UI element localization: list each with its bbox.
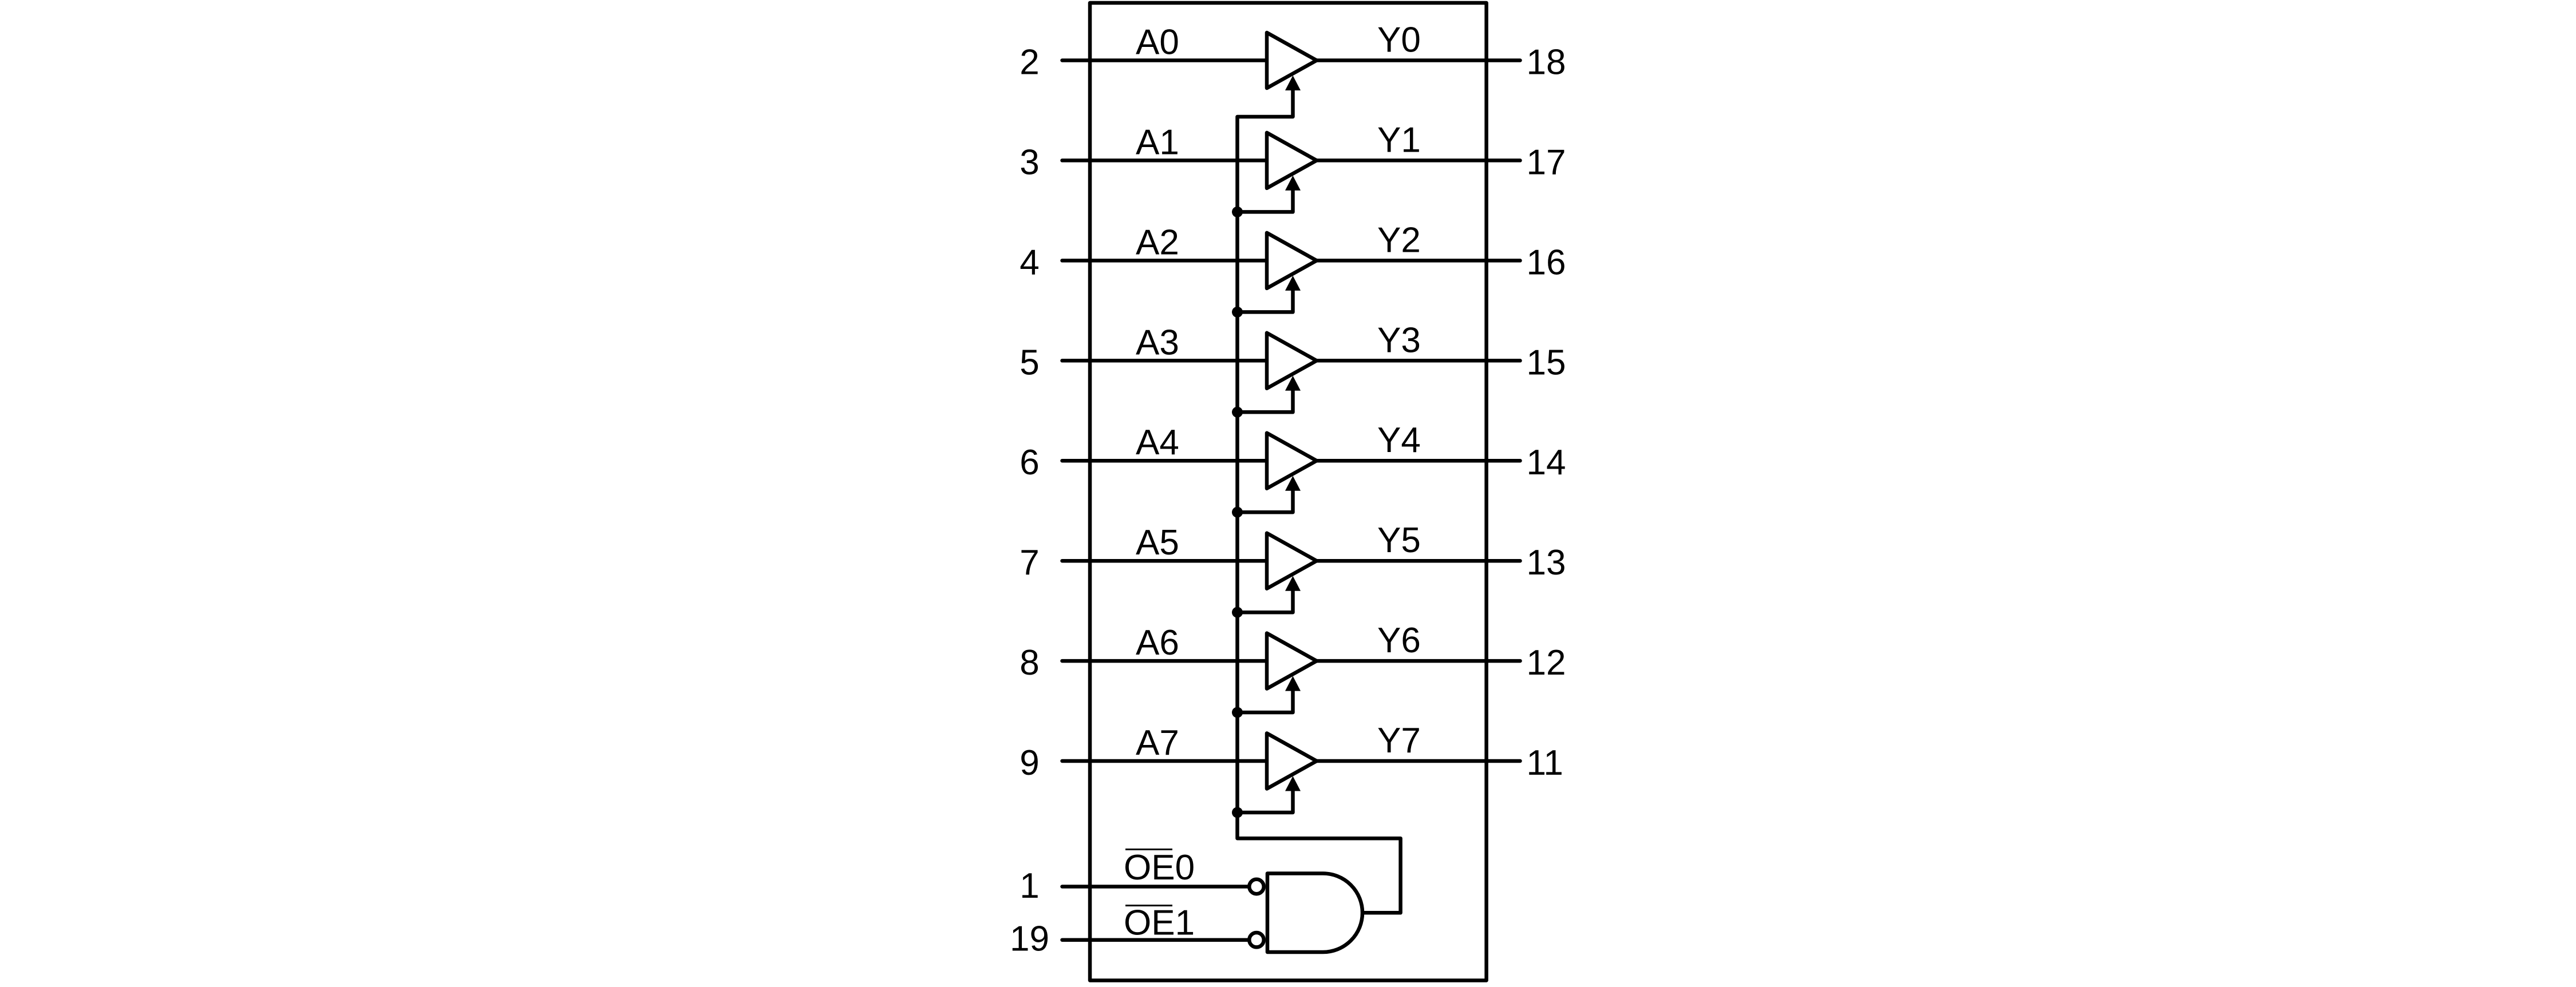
- svg-text:A4: A4: [1136, 423, 1179, 462]
- svg-text:A1: A1: [1136, 122, 1179, 162]
- svg-text:16: 16: [1527, 243, 1566, 282]
- svg-text:A3: A3: [1136, 323, 1179, 362]
- svg-text:Y3: Y3: [1377, 320, 1421, 360]
- svg-text:Y7: Y7: [1377, 721, 1421, 760]
- svg-text:OE1: OE1: [1124, 903, 1195, 943]
- svg-text:7: 7: [1020, 543, 1039, 582]
- svg-text:14: 14: [1527, 443, 1566, 482]
- svg-text:1: 1: [1020, 866, 1039, 906]
- svg-text:Y2: Y2: [1377, 220, 1421, 260]
- svg-text:Y1: Y1: [1377, 120, 1421, 160]
- svg-text:A6: A6: [1136, 623, 1179, 663]
- svg-text:12: 12: [1527, 643, 1566, 683]
- svg-text:A5: A5: [1136, 523, 1179, 562]
- svg-text:4: 4: [1020, 243, 1039, 282]
- svg-text:A7: A7: [1136, 723, 1179, 763]
- svg-text:8: 8: [1020, 643, 1039, 683]
- svg-text:Y0: Y0: [1377, 21, 1421, 60]
- svg-text:5: 5: [1020, 343, 1039, 382]
- svg-text:11: 11: [1527, 743, 1563, 783]
- svg-text:13: 13: [1527, 543, 1566, 582]
- svg-text:Y4: Y4: [1377, 421, 1421, 460]
- svg-text:15: 15: [1527, 343, 1566, 382]
- svg-text:17: 17: [1527, 142, 1566, 182]
- svg-text:3: 3: [1020, 142, 1039, 182]
- svg-text:2: 2: [1020, 43, 1039, 82]
- svg-text:Y6: Y6: [1377, 621, 1421, 660]
- svg-text:Y5: Y5: [1377, 521, 1421, 560]
- svg-text:19: 19: [1010, 919, 1049, 959]
- svg-text:18: 18: [1527, 43, 1566, 82]
- svg-text:6: 6: [1020, 443, 1039, 482]
- svg-text:A0: A0: [1136, 23, 1179, 62]
- svg-text:9: 9: [1020, 743, 1039, 783]
- svg-text:A2: A2: [1136, 223, 1179, 262]
- svg-text:OE0: OE0: [1124, 848, 1195, 887]
